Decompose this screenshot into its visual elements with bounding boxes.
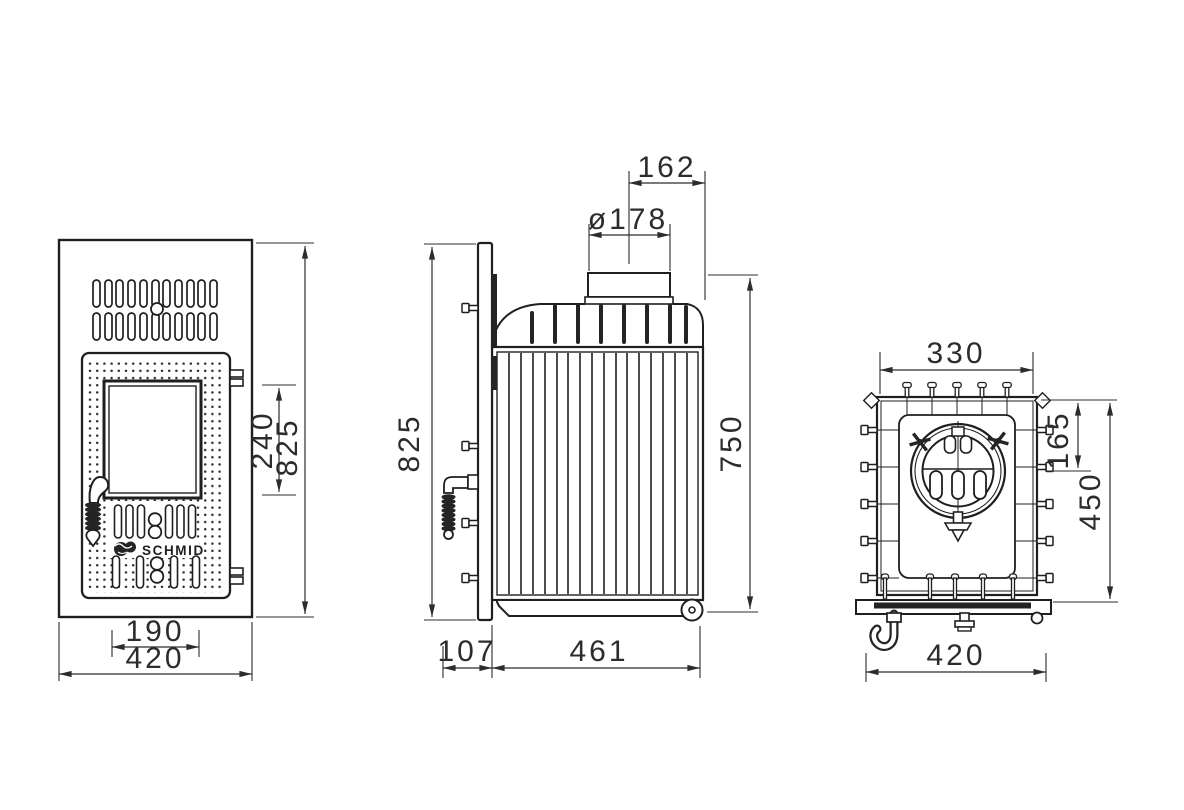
dim-side-flue-offset: 162 [637,151,696,184]
dim-side-total-height: 825 [393,413,426,472]
roller-wheel [682,600,703,621]
front-door: SCHMID [82,353,243,598]
flue-collar [585,273,673,304]
damper-slots [930,471,986,499]
vent-screw [151,303,163,315]
side-base [497,600,697,616]
side-dome-ribs [532,305,686,342]
dim-front-total-width: 420 [125,642,184,675]
dim-rear-top-width: 330 [926,337,985,370]
front-view: SCHMID [59,240,314,681]
dim-rear-flue-offset: 165 [1042,410,1075,469]
dim-side-body-height: 750 [715,413,748,472]
dim-side-body-depth: 461 [569,635,628,668]
base-roller [1032,613,1043,624]
dim-side-flue-diameter: ø178 [588,203,668,236]
technical-drawing-page: SCHMID [0,0,1184,810]
stove-technical-drawing: SCHMID [0,0,1184,810]
side-door-handle [442,475,479,539]
dim-side-front-depth: 107 [437,635,496,668]
door-window [104,381,201,498]
drain-hook [874,613,901,647]
dim-front-total-height: 825 [271,417,304,476]
dim-rear-body-height: 450 [1074,471,1107,530]
dim-rear-base-width: 420 [926,639,985,672]
side-front-plate [462,243,497,620]
side-dome-left [492,304,585,347]
base-center-fitting [955,613,974,631]
side-view: 162 ø178 825 750 107 461 [393,151,758,678]
side-body [492,347,703,621]
rear-view: 330 165 450 420 [856,337,1118,682]
